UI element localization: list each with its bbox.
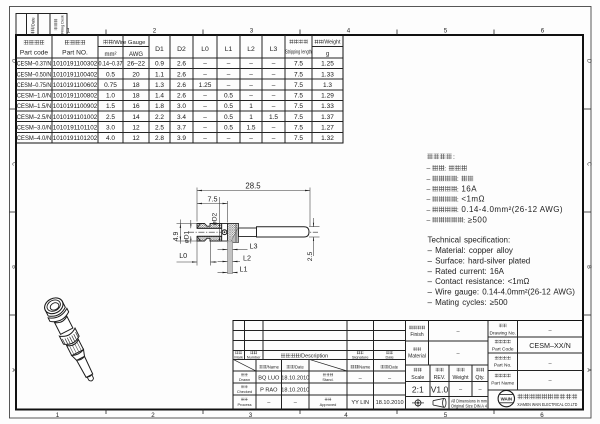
- svg-text:–: –: [427, 166, 431, 173]
- svg-text:D1: D1: [155, 46, 164, 53]
- svg-text:L2: L2: [243, 254, 251, 263]
- svg-text:6: 6: [541, 27, 545, 34]
- svg-text:1.3: 1.3: [323, 82, 332, 89]
- svg-text:3.9: 3.9: [177, 135, 186, 142]
- svg-text:2.5: 2.5: [307, 252, 314, 262]
- svg-text:1010191100302: 1010191100302: [53, 61, 98, 68]
- svg-text:1010191100902: 1010191100902: [53, 103, 98, 110]
- svg-text:1.5: 1.5: [246, 125, 255, 132]
- svg-text:1.37: 1.37: [321, 114, 334, 121]
- svg-text:–: –: [272, 61, 276, 68]
- svg-text:Approved: Approved: [320, 402, 337, 407]
- svg-text:Filing Desk: Filing Desk: [60, 15, 64, 34]
- svg-text:2: 2: [153, 27, 157, 34]
- svg-text:18: 18: [132, 82, 140, 89]
- svg-text:AWG: AWG: [129, 52, 143, 58]
- svg-text:16A: 16A: [461, 184, 477, 193]
- svg-text:CESM–3.0/N: CESM–3.0/N: [17, 125, 52, 132]
- svg-text:18.10.2010: 18.10.2010: [281, 375, 309, 381]
- svg-text:Finish: Finish: [410, 332, 424, 338]
- svg-text:/Wire Gauge: /Wire Gauge: [113, 40, 146, 46]
- svg-text:12: 12: [132, 135, 140, 142]
- svg-text:Drawing No.: Drawing No.: [489, 330, 515, 336]
- svg-text:5: 5: [444, 27, 448, 34]
- svg-text:4: 4: [344, 412, 348, 419]
- svg-text:Mark: Mark: [234, 355, 243, 360]
- svg-text:1.33: 1.33: [321, 103, 334, 110]
- svg-text:2: 2: [151, 412, 155, 419]
- svg-text:øD1: øD1: [183, 230, 190, 243]
- svg-text:5: 5: [444, 412, 448, 419]
- svg-text:16: 16: [132, 103, 140, 110]
- svg-text:1.1: 1.1: [155, 71, 164, 78]
- svg-text:CESM–0.50/N: CESM–0.50/N: [17, 71, 52, 78]
- svg-text:12: 12: [132, 125, 140, 132]
- svg-text:26–22: 26–22: [127, 61, 145, 68]
- svg-text:Date: Date: [385, 355, 393, 360]
- svg-text:0.5: 0.5: [106, 71, 115, 78]
- svg-text:V1.0: V1.0: [431, 384, 449, 394]
- svg-text:3.7: 3.7: [177, 125, 186, 132]
- svg-text:0.5: 0.5: [224, 103, 233, 110]
- svg-text:–: –: [427, 217, 431, 224]
- svg-text:7.5: 7.5: [294, 103, 303, 110]
- svg-text:WAIN: WAIN: [501, 396, 512, 401]
- svg-text:<1mΩ: <1mΩ: [461, 195, 485, 204]
- svg-text:1.29: 1.29: [321, 93, 334, 100]
- svg-text:1.25: 1.25: [199, 82, 212, 89]
- svg-text:–: –: [272, 125, 276, 132]
- svg-text:1.5: 1.5: [106, 103, 115, 110]
- svg-text:– Wire gauge: 0.14-4.0mm²(26-1: – Wire gauge: 0.14-4.0mm²(26-12 AWG): [428, 288, 576, 297]
- svg-text:D: D: [585, 59, 591, 63]
- svg-text::: :: [463, 217, 465, 224]
- svg-text:CESM–0.75/N: CESM–0.75/N: [17, 82, 52, 89]
- svg-text::: :: [457, 176, 459, 183]
- svg-text:1010191101102: 1010191101102: [53, 125, 98, 132]
- svg-text:L3: L3: [270, 46, 278, 53]
- svg-text:1.25: 1.25: [321, 61, 334, 68]
- svg-text:6: 6: [540, 412, 544, 419]
- svg-text:Checked: Checked: [237, 389, 252, 394]
- svg-text:3.4: 3.4: [177, 114, 186, 121]
- svg-text:–: –: [427, 176, 431, 183]
- svg-text:Part Code: Part Code: [492, 346, 514, 352]
- svg-text:–: –: [203, 71, 207, 78]
- svg-text:1: 1: [249, 103, 253, 110]
- svg-text:Stand.: Stand.: [322, 377, 333, 382]
- svg-text:XIAMEN WAIN ELECTRICAL CO.LTD: XIAMEN WAIN ELECTRICAL CO.LTD: [517, 402, 577, 407]
- svg-text:Original Size DIN A 4: Original Size DIN A 4: [451, 404, 487, 409]
- svg-text:–: –: [203, 93, 207, 100]
- svg-text:7.5: 7.5: [294, 125, 303, 132]
- svg-text:7.5: 7.5: [208, 195, 218, 204]
- svg-text:Stripping length: Stripping length: [285, 50, 312, 56]
- svg-text:Weight: Weight: [452, 375, 469, 381]
- svg-text:A: A: [11, 368, 17, 372]
- svg-text:BQ LUO: BQ LUO: [258, 375, 280, 381]
- svg-text:–: –: [427, 207, 431, 214]
- svg-text:2.5: 2.5: [106, 114, 115, 121]
- svg-text:1010191100402: 1010191100402: [53, 71, 98, 78]
- svg-text:– Contact resistance: <1mΩ: – Contact resistance: <1mΩ: [428, 277, 530, 286]
- svg-text:4.9: 4.9: [173, 232, 180, 242]
- svg-text:REV.: REV.: [434, 375, 446, 381]
- svg-text:4.0: 4.0: [106, 135, 115, 142]
- svg-text:–: –: [203, 125, 207, 132]
- svg-text:1010191101202: 1010191101202: [53, 135, 98, 142]
- svg-text:1.8: 1.8: [155, 103, 164, 110]
- svg-text:3: 3: [250, 27, 254, 34]
- svg-text:–: –: [227, 61, 231, 68]
- svg-text:20: 20: [132, 71, 140, 78]
- svg-text:B: B: [11, 265, 17, 269]
- svg-text:Material: Material: [408, 354, 426, 360]
- svg-text:0.14–0.37: 0.14–0.37: [99, 61, 123, 68]
- svg-text:1.0: 1.0: [106, 93, 115, 100]
- svg-text:18.10.2010: 18.10.2010: [376, 400, 404, 406]
- svg-text:2.6: 2.6: [177, 93, 186, 100]
- svg-text:– Rated current: 16A: – Rated current: 16A: [428, 267, 505, 276]
- svg-text:1: 1: [56, 412, 60, 419]
- svg-text:–: –: [249, 135, 253, 142]
- svg-text:–: –: [203, 103, 207, 110]
- svg-text:B: B: [585, 265, 591, 269]
- svg-text:1.27: 1.27: [321, 125, 334, 132]
- svg-text:CESM–1.5/N: CESM–1.5/N: [17, 103, 52, 110]
- svg-text:–: –: [249, 93, 253, 100]
- svg-text:L1: L1: [225, 46, 233, 53]
- svg-text:0.14-4.0mm²(26-12 AWG): 0.14-4.0mm²(26-12 AWG): [461, 205, 563, 214]
- svg-text:Drawn: Drawn: [239, 377, 250, 382]
- svg-text:3: 3: [249, 412, 253, 419]
- svg-text:CESM–0.37/N: CESM–0.37/N: [17, 61, 52, 68]
- svg-text:Qty.: Qty.: [475, 375, 484, 381]
- svg-text:–: –: [427, 186, 431, 193]
- svg-text:/Date: /Date: [30, 17, 35, 28]
- svg-text:/Date: /Date: [294, 364, 305, 369]
- svg-text:0.5: 0.5: [224, 93, 233, 100]
- svg-text:2.5: 2.5: [155, 125, 164, 132]
- svg-text:3.0: 3.0: [106, 125, 115, 132]
- svg-text:øD2: øD2: [211, 212, 218, 225]
- svg-text:Process: Process: [237, 402, 251, 407]
- svg-text:7.5: 7.5: [294, 135, 303, 142]
- svg-text:CESM–4.0/N: CESM–4.0/N: [17, 135, 52, 142]
- svg-text:Technical specification:: Technical specification:: [428, 236, 511, 245]
- svg-text:7.5: 7.5: [294, 71, 303, 78]
- svg-text:C: C: [585, 162, 591, 166]
- svg-text:Number: Number: [247, 355, 262, 360]
- svg-text:Scale: Scale: [411, 375, 424, 381]
- svg-text:–: –: [249, 61, 253, 68]
- svg-text:18: 18: [132, 93, 140, 100]
- svg-text:/Name: /Name: [358, 364, 371, 369]
- svg-text:Part code: Part code: [20, 50, 49, 57]
- svg-text:C: C: [11, 162, 17, 166]
- svg-text:–: –: [203, 114, 207, 121]
- svg-text:–: –: [272, 135, 276, 142]
- svg-text:CESM–XX/N: CESM–XX/N: [529, 341, 571, 350]
- svg-text:Signature: Signature: [352, 355, 369, 360]
- svg-text::: :: [453, 154, 455, 161]
- svg-text:1.3: 1.3: [155, 82, 164, 89]
- svg-text:0.9: 0.9: [155, 61, 164, 68]
- svg-text:0.75: 0.75: [104, 82, 117, 89]
- svg-text:mm²: mm²: [105, 52, 117, 58]
- svg-text:CESM–1.0/N: CESM–1.0/N: [17, 93, 52, 100]
- svg-text:1010191100602: 1010191100602: [53, 82, 98, 89]
- svg-text:L0: L0: [179, 251, 187, 260]
- svg-text:–: –: [203, 135, 207, 142]
- svg-text:g: g: [326, 52, 329, 58]
- svg-text:28.5: 28.5: [245, 181, 261, 190]
- svg-text:1010191100802: 1010191100802: [53, 93, 98, 100]
- svg-text:–: –: [203, 61, 207, 68]
- svg-text:7.5: 7.5: [294, 82, 303, 89]
- svg-text:2.2: 2.2: [155, 114, 164, 121]
- svg-text:–: –: [272, 103, 276, 110]
- svg-text:– Surface: hard-silver plated: – Surface: hard-silver plated: [428, 257, 531, 266]
- svg-text:A: A: [585, 368, 591, 372]
- svg-text:Part Name: Part Name: [491, 380, 514, 386]
- svg-text:1010191101002: 1010191101002: [53, 114, 98, 121]
- svg-text:–: –: [249, 71, 253, 78]
- svg-text:–: –: [227, 135, 231, 142]
- svg-text:1.33: 1.33: [321, 71, 334, 78]
- svg-text:–: –: [272, 93, 276, 100]
- svg-text:2.8: 2.8: [155, 135, 164, 142]
- svg-text:2.6: 2.6: [177, 71, 186, 78]
- svg-text:≥500: ≥500: [468, 215, 488, 224]
- svg-text:L0: L0: [201, 46, 209, 53]
- svg-text:/Description: /Description: [300, 354, 328, 360]
- svg-text:7.5: 7.5: [294, 93, 303, 100]
- svg-text:Part NO.: Part NO.: [62, 50, 88, 57]
- svg-text:L1: L1: [240, 265, 248, 274]
- svg-text:Part No.: Part No.: [494, 363, 512, 369]
- svg-text:– Material: copper alloy: – Material: copper alloy: [428, 246, 513, 255]
- svg-text:1.5: 1.5: [269, 114, 278, 121]
- svg-text:–: –: [249, 82, 253, 89]
- svg-text:L2: L2: [247, 46, 255, 53]
- svg-text:1: 1: [249, 114, 253, 121]
- svg-text:L3: L3: [250, 242, 258, 251]
- svg-text:–: –: [272, 71, 276, 78]
- svg-text:–: –: [427, 197, 431, 204]
- svg-text:3.0: 3.0: [177, 103, 186, 110]
- svg-text:P RAO: P RAO: [260, 387, 278, 393]
- svg-text:7.5: 7.5: [294, 114, 303, 121]
- svg-text:0.5: 0.5: [224, 114, 233, 121]
- svg-text::: :: [457, 197, 459, 204]
- svg-text:2.6: 2.6: [177, 82, 186, 89]
- svg-text::: :: [457, 207, 459, 214]
- svg-text:2.6: 2.6: [177, 61, 186, 68]
- svg-text:/Weight: /Weight: [323, 40, 341, 46]
- svg-text:7.5: 7.5: [294, 61, 303, 68]
- svg-text:– Mating cycles: ≥500: – Mating cycles: ≥500: [428, 298, 509, 307]
- svg-text:1.4: 1.4: [155, 93, 164, 100]
- svg-text:–: –: [227, 82, 231, 89]
- svg-text::: :: [444, 166, 446, 173]
- svg-text:4: 4: [347, 27, 351, 34]
- svg-text:CESM–2.5/N: CESM–2.5/N: [17, 114, 52, 121]
- svg-text:/Name: /Name: [267, 364, 280, 369]
- svg-text:D2: D2: [177, 46, 186, 53]
- svg-text:YY LIN: YY LIN: [351, 400, 369, 406]
- svg-text:–: –: [272, 82, 276, 89]
- svg-text:2:1: 2:1: [412, 384, 424, 394]
- svg-text:1.32: 1.32: [321, 135, 334, 142]
- svg-text:/Date: /Date: [388, 364, 399, 369]
- svg-text:0.5: 0.5: [224, 125, 233, 132]
- svg-text:18.10.2010: 18.10.2010: [281, 387, 309, 393]
- svg-text:14: 14: [132, 114, 140, 121]
- svg-text:–: –: [227, 71, 231, 78]
- svg-text::: :: [457, 186, 459, 193]
